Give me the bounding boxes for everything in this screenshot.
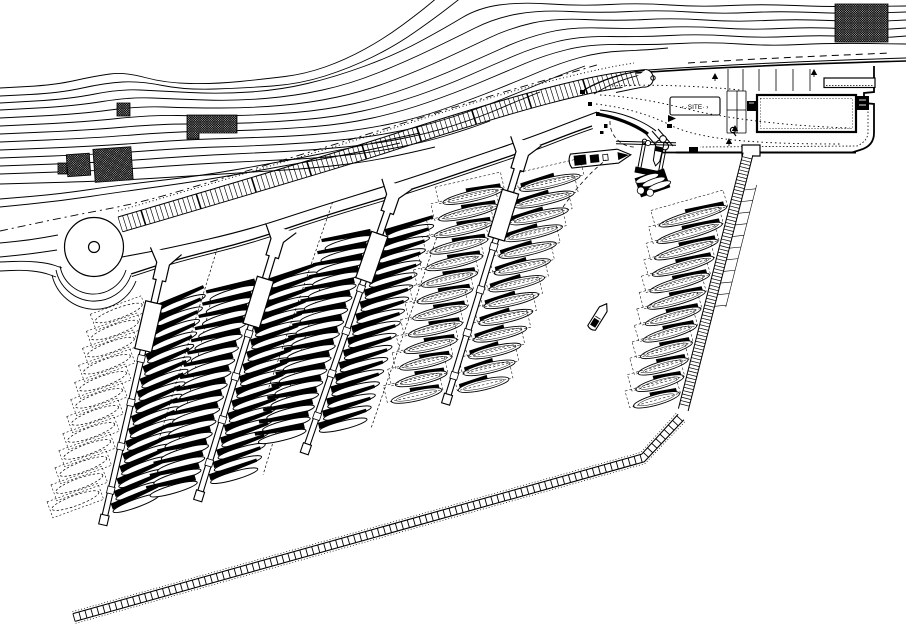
svg-text:‹ ·SITE· ›: ‹ ·SITE· › <box>682 104 709 111</box>
